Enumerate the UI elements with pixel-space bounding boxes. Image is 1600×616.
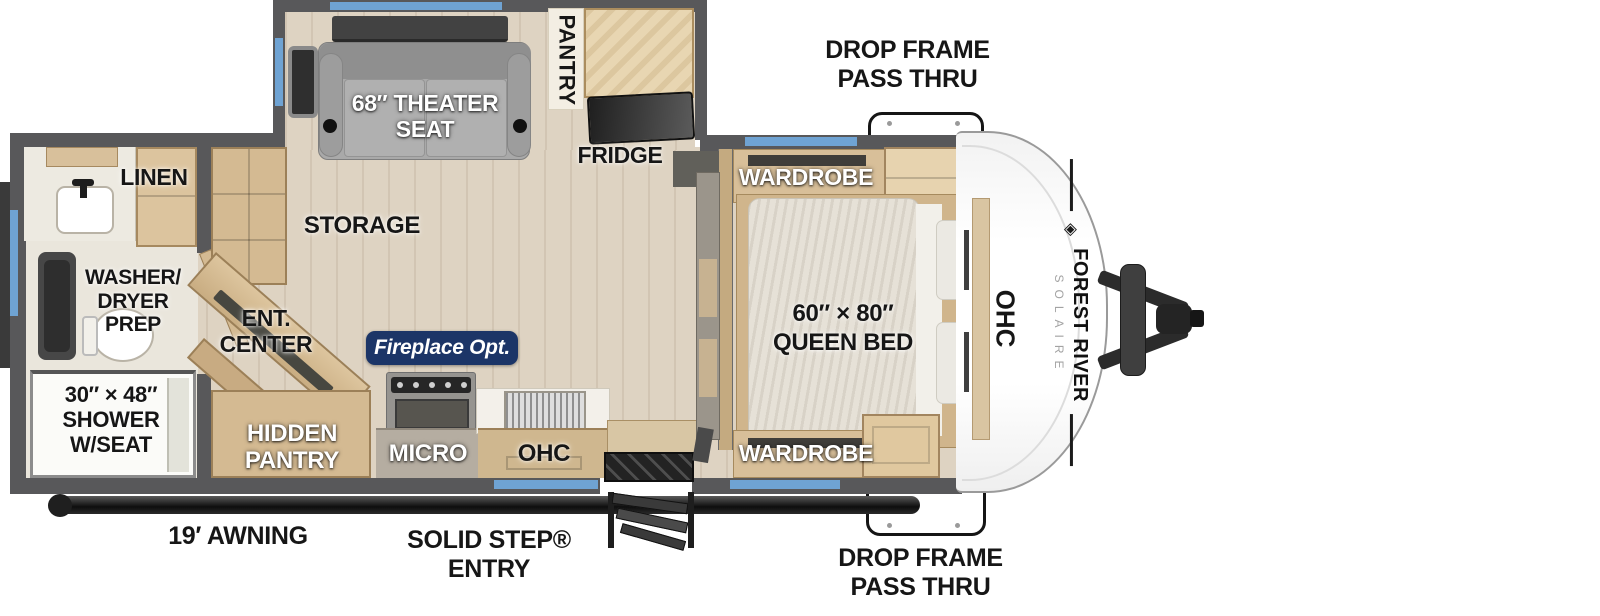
cap-brand-wrap: ◈ FOREST RIVER SOLAIRE bbox=[1036, 131, 1106, 493]
queen-bed-label: 60″ × 80″ QUEEN BED bbox=[756, 300, 930, 358]
rivet-icon bbox=[955, 523, 960, 528]
kitchen-sink bbox=[504, 391, 586, 431]
storage-label: STORAGE bbox=[294, 212, 430, 239]
hidden-pantry-label: HIDDEN PANTRY bbox=[228, 420, 356, 474]
theater-seat-label-line2: SEAT bbox=[335, 116, 515, 142]
hitch-tip bbox=[1190, 310, 1204, 327]
fireplace-label: Fireplace Opt. bbox=[374, 336, 510, 360]
shelf-line bbox=[248, 149, 250, 283]
fireplace-badge: Fireplace Opt. bbox=[366, 331, 518, 365]
burner-panel-icon bbox=[391, 377, 471, 393]
rear-bumper-bar bbox=[0, 182, 10, 368]
washer-label-line2: DRYER bbox=[70, 290, 196, 314]
washer-label-line1: WASHER/ bbox=[70, 266, 196, 290]
bedroom-divider-wall bbox=[718, 149, 733, 450]
pantry-label: PANTRY bbox=[553, 15, 579, 106]
burner-knob-icon bbox=[445, 382, 451, 388]
ent-label-line1: ENT. bbox=[210, 305, 322, 331]
solid-step-line1: SOLID STEP® bbox=[398, 526, 580, 555]
bathroom-wall-lower bbox=[197, 374, 211, 478]
pillow-accent bbox=[964, 230, 969, 290]
ohc-bedroom-wrap: OHC bbox=[982, 282, 1028, 354]
drop-frame-top-line1: DROP FRAME bbox=[815, 36, 1000, 65]
faucet-icon bbox=[72, 179, 94, 186]
oven-door-icon bbox=[395, 399, 469, 429]
burner-knob-icon bbox=[397, 382, 403, 388]
window-slide-left bbox=[275, 38, 283, 106]
brand-text-block: FOREST RIVER SOLAIRE bbox=[1052, 248, 1091, 402]
slide-wall-right bbox=[695, 0, 707, 140]
rv-floorplan: 68″ THEATER SEAT PANTRY FRIDGE LINEN WAS… bbox=[0, 0, 1600, 616]
shower-label-line3: W/SEAT bbox=[38, 433, 184, 458]
washer-inner bbox=[44, 260, 70, 352]
awning-label: 19′ AWNING bbox=[148, 522, 328, 550]
stove bbox=[386, 372, 476, 434]
window-kitchen-bottom bbox=[494, 480, 598, 489]
wardrobe-bottom-label: WARDROBE bbox=[727, 440, 885, 466]
awning-end-cap bbox=[48, 494, 72, 517]
shower-label-line1: 30″ × 48″ bbox=[38, 383, 184, 408]
entry-landing bbox=[604, 452, 694, 482]
ent-label-line2: CENTER bbox=[210, 331, 322, 357]
rivet-icon bbox=[887, 121, 892, 126]
fridge bbox=[587, 91, 695, 144]
washer-label-line3: PREP bbox=[70, 313, 196, 337]
ohc-kitchen-label: OHC bbox=[498, 440, 590, 467]
window-slide-top bbox=[330, 2, 502, 10]
cabinet-panel bbox=[699, 339, 717, 397]
cupholder-icon bbox=[513, 119, 527, 133]
brand-model: SOLAIRE bbox=[1052, 274, 1066, 375]
step-rail bbox=[688, 492, 694, 548]
drop-frame-bottom-label: DROP FRAME PASS THRU bbox=[828, 544, 1013, 602]
theater-seat-label-line1: 68″ THEATER bbox=[335, 90, 515, 116]
hidden-pantry-line1: HIDDEN bbox=[228, 420, 356, 447]
forest-river-logo-icon: ◈ bbox=[1061, 223, 1081, 236]
cap-brand: ◈ FOREST RIVER SOLAIRE bbox=[1052, 159, 1091, 466]
pantry-label-wrap: PANTRY bbox=[543, 12, 589, 108]
wardrobe-top-label: WARDROBE bbox=[727, 164, 885, 190]
window-bedroom-bottom bbox=[730, 480, 840, 489]
sofa-backrest bbox=[319, 43, 531, 79]
shelf-line bbox=[886, 177, 960, 179]
burner-knob-icon bbox=[413, 382, 419, 388]
fridge-label: FRIDGE bbox=[564, 142, 676, 168]
pillow-accent bbox=[964, 332, 969, 392]
linen-label: LINEN bbox=[106, 164, 202, 190]
bed-label-line2: QUEEN BED bbox=[756, 329, 930, 358]
hitch-jack-bar bbox=[1120, 264, 1146, 376]
shower-label-line2: SHOWER bbox=[38, 408, 184, 433]
brand-rule bbox=[1070, 413, 1073, 465]
hitch-coupler bbox=[1156, 304, 1192, 334]
solid-step-line2: ENTRY bbox=[398, 555, 580, 584]
burner-knob-icon bbox=[429, 382, 435, 388]
shelf-line bbox=[138, 195, 195, 197]
window-bathroom-left bbox=[10, 210, 18, 316]
burner-knob-icon bbox=[461, 382, 467, 388]
bed-label-line1: 60″ × 80″ bbox=[756, 300, 930, 329]
ohc-bedroom-label: OHC bbox=[990, 289, 1021, 347]
brand-rule bbox=[1070, 159, 1073, 211]
overhead-bin bbox=[332, 16, 508, 42]
awning-tube bbox=[58, 496, 920, 514]
brand-name: FOREST RIVER bbox=[1068, 248, 1091, 402]
theater-seat-label: 68″ THEATER SEAT bbox=[335, 90, 515, 142]
cabinet-panel bbox=[699, 259, 717, 317]
drop-frame-bottom-line2: PASS THRU bbox=[828, 573, 1013, 602]
bedroom-side-cabinet bbox=[696, 172, 720, 440]
shower-label: 30″ × 48″ SHOWER W/SEAT bbox=[38, 383, 184, 458]
pantry-cabinet bbox=[584, 8, 694, 98]
solid-step-label: SOLID STEP® ENTRY bbox=[398, 526, 580, 584]
drop-frame-top-line2: PASS THRU bbox=[815, 65, 1000, 94]
bathroom-wall-upper bbox=[197, 147, 211, 253]
micro-label: MICRO bbox=[380, 440, 476, 467]
drop-frame-top-label: DROP FRAME PASS THRU bbox=[815, 36, 1000, 94]
linen-cabinet bbox=[136, 147, 197, 247]
hidden-pantry-line2: PANTRY bbox=[228, 447, 356, 474]
window-bedroom-top bbox=[745, 137, 857, 146]
rivet-icon bbox=[887, 523, 892, 528]
drop-frame-bottom-line1: DROP FRAME bbox=[828, 544, 1013, 573]
washer-dryer-label: WASHER/ DRYER PREP bbox=[70, 266, 196, 337]
slide-window-frame bbox=[288, 46, 318, 118]
ent-center-label: ENT. CENTER bbox=[210, 305, 322, 357]
rivet-icon bbox=[955, 121, 960, 126]
